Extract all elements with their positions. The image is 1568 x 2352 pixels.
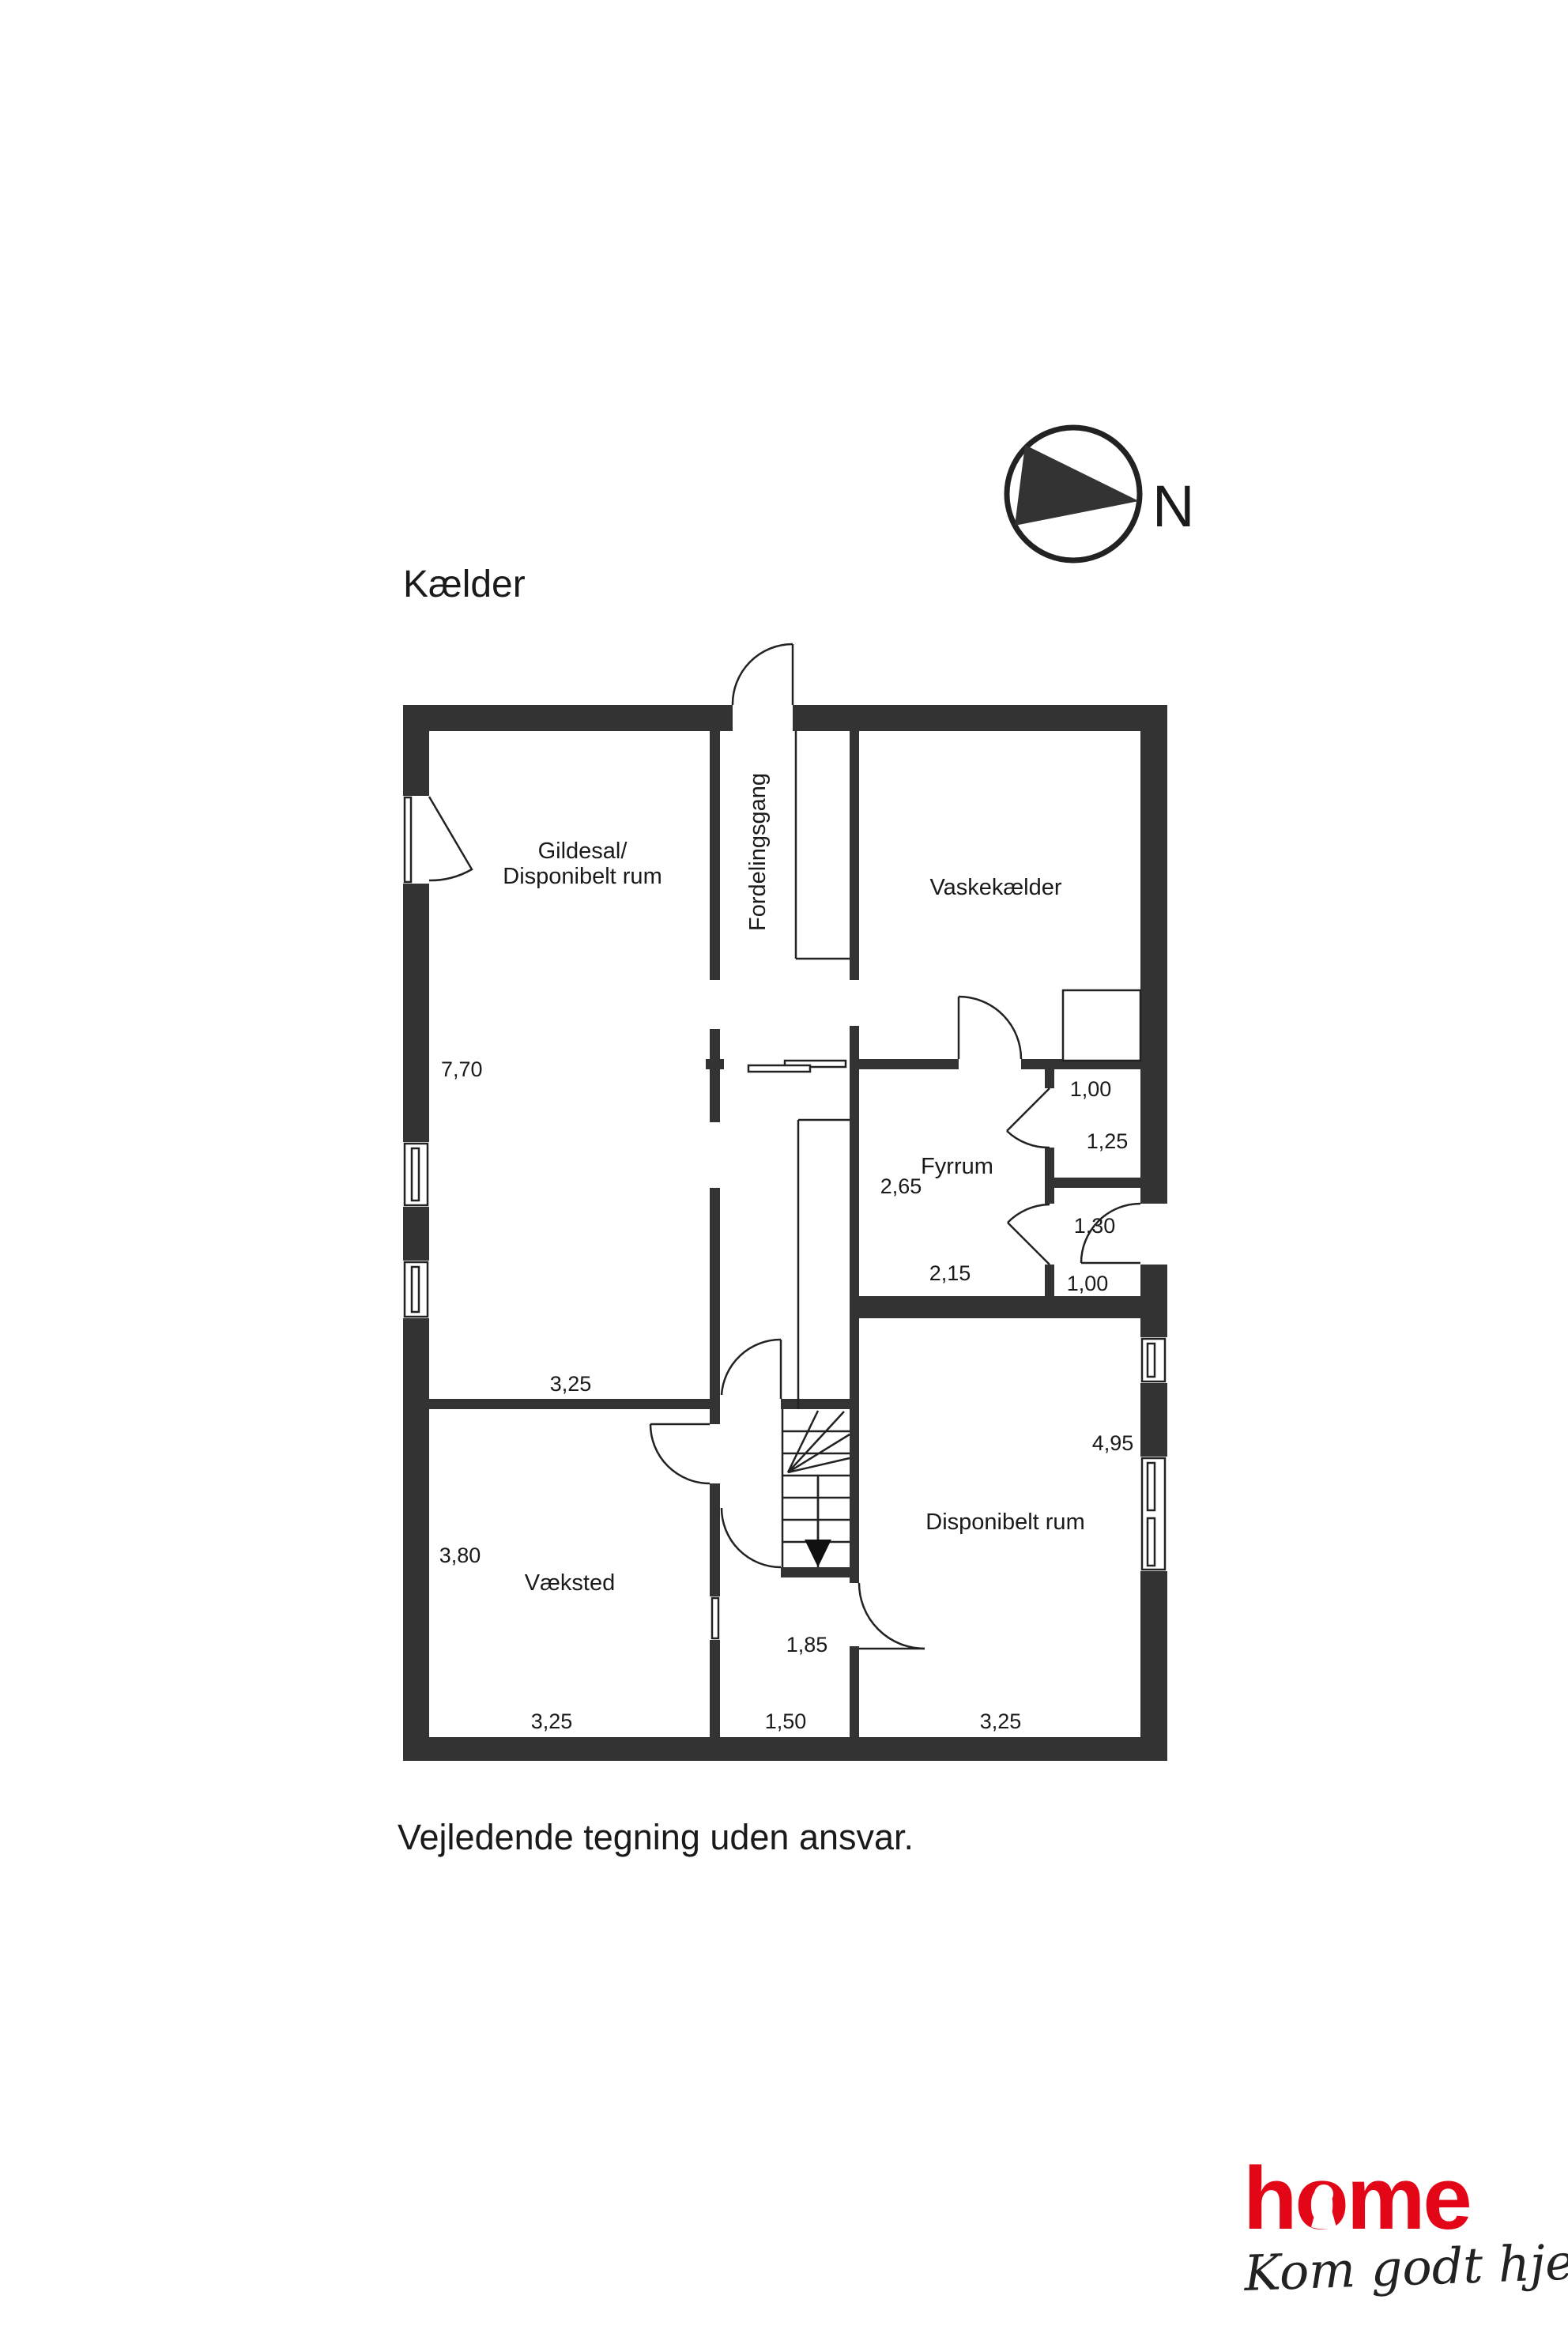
openable-window-swing-icon — [429, 797, 472, 880]
page-title: Kælder — [403, 563, 526, 605]
door-symbols — [650, 644, 1140, 1649]
disclaimer-text: Vejledende tegning uden ansvar. — [398, 1817, 914, 1857]
wall-closet-stub-top — [1045, 1069, 1054, 1088]
window-glass-icon — [1148, 1518, 1155, 1566]
closet1-door-leaf — [1007, 1088, 1050, 1131]
closet1-door-arc-icon — [1007, 1131, 1050, 1148]
wall-vaeksted-hall-mid — [710, 1483, 720, 1596]
window-glass-icon — [1148, 1463, 1155, 1510]
dim-closet2-height: 1,00 — [1067, 1272, 1109, 1295]
dim-stairhall-width: 1,85 — [786, 1633, 828, 1657]
stairhall-door-arc-icon — [722, 1508, 781, 1567]
dim-closet2-width: 1,30 — [1074, 1214, 1116, 1238]
dim-closet1-width: 1,00 — [1070, 1077, 1112, 1101]
wall-openings — [403, 705, 1167, 1571]
room-label-gildesal-line2: Disponibelt rum — [503, 864, 661, 889]
entrance-door-arc-icon — [733, 644, 793, 705]
dim-vaeksted-height: 3,80 — [439, 1543, 481, 1567]
openable-window-frame — [405, 797, 411, 882]
room-label-gildesal-line1: Gildesal/ — [538, 839, 628, 864]
dimension-labels: 7,70 3,25 3,80 2,65 2,15 1,00 1,25 1,30 … — [439, 1057, 1134, 1733]
dim-gildesal-width: 3,25 — [550, 1372, 592, 1396]
wall-stair-bottom — [781, 1567, 851, 1577]
dim-fyrrum-height: 2,65 — [880, 1174, 922, 1198]
dim-disponibelt-height: 4,95 — [1092, 1431, 1134, 1455]
window-glass-icon — [1148, 1344, 1155, 1377]
window-glass-icon — [412, 1267, 419, 1312]
chimney-icon — [1063, 990, 1140, 1061]
shelf-icon — [748, 1065, 810, 1072]
dim-hall-width: 1,50 — [765, 1709, 807, 1733]
wall-gildesal-corridor-top — [710, 731, 720, 980]
north-label: N — [1152, 473, 1194, 539]
wall-tick — [706, 1059, 724, 1069]
dim-closet1-height: 1,25 — [1087, 1129, 1129, 1153]
floor-plan-page: N Kælder — [0, 0, 1568, 2352]
room-label-fordelingsgang: Fordelingsgang — [745, 773, 771, 931]
corridor-door-arc-icon — [722, 1340, 781, 1395]
dim-disponibelt-width: 3,25 — [980, 1709, 1022, 1733]
wall-closet-divider — [1054, 1178, 1140, 1188]
closet2-door-arc-icon — [1008, 1204, 1050, 1223]
exterior-door-opening — [1140, 1204, 1167, 1265]
fyrrum-door-arc-icon — [959, 997, 1021, 1059]
north-arrow: N — [1007, 428, 1194, 560]
brand-logo: home Kom godt hjem — [1242, 2149, 1568, 2302]
dim-fyrrum-width: 2,15 — [929, 1261, 971, 1285]
interior-window-icon — [712, 1598, 718, 1638]
wall-stair-top — [781, 1399, 851, 1409]
brand-logo-text: home — [1243, 2149, 1470, 2248]
vaeksted-door-arc-icon — [650, 1424, 710, 1483]
window-glass-icon — [412, 1148, 419, 1200]
disponibelt-door-arc-icon — [859, 1583, 925, 1649]
wall-vaeksted-hall-low — [710, 1640, 720, 1737]
wall-vaskekaelder-bottom-left — [859, 1059, 959, 1069]
entrance-opening — [733, 705, 793, 731]
room-labels: Gildesal/ Disponibelt rum Fordelingsgang… — [503, 773, 1084, 1596]
stair-winder — [788, 1458, 850, 1472]
wall-fyrrum-disponibelt — [850, 1296, 1167, 1318]
room-label-vaeksted: Væksted — [525, 1570, 615, 1596]
wall-gildesal-vaeksted — [429, 1399, 720, 1409]
north-arrow-needle — [1015, 445, 1139, 526]
dim-vaeksted-width: 3,25 — [531, 1709, 573, 1733]
wall-gildesal-corridor-low — [710, 1188, 720, 1399]
outer-wall-bottom — [403, 1737, 1167, 1761]
room-label-fyrrum: Fyrrum — [921, 1154, 993, 1179]
wall-corridor-vaskekaelder — [850, 731, 859, 980]
closet2-door-leaf — [1008, 1223, 1050, 1265]
dim-gildesal-height: 7,70 — [441, 1057, 483, 1081]
wall-hall-disponibelt — [850, 1646, 859, 1737]
wall-closet-mid — [1045, 1148, 1054, 1204]
wall-gildesal-corridor-mid — [710, 1029, 720, 1122]
room-label-disponibelt: Disponibelt rum — [925, 1510, 1084, 1535]
floor-plan-drawing: N Kælder — [0, 0, 1568, 2352]
room-label-vaskekaelder: Vaskekælder — [929, 875, 1061, 900]
staircase — [782, 731, 850, 1567]
wall-vaeksted-stub — [710, 1409, 720, 1424]
stair-down-arrow-icon — [805, 1540, 831, 1567]
